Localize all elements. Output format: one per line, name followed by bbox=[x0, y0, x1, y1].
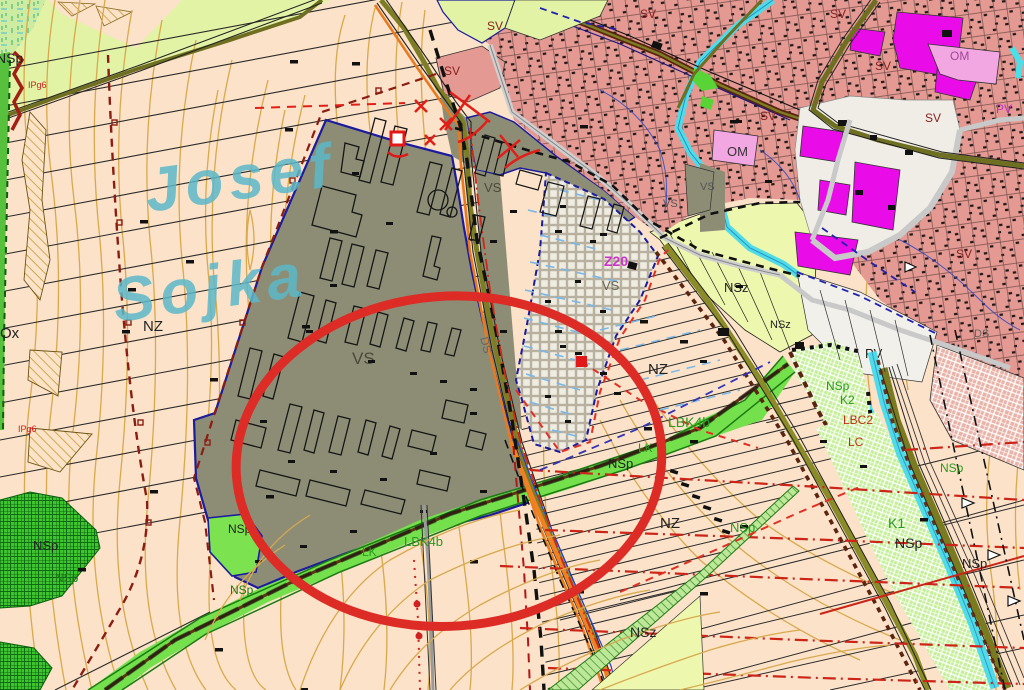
svg-text:LBK4b: LBK4b bbox=[668, 414, 710, 430]
svg-text:NSp: NSp bbox=[895, 535, 922, 551]
svg-text:VS: VS bbox=[602, 278, 620, 293]
svg-text:LBC2: LBC2 bbox=[843, 413, 873, 427]
svg-text:NSz: NSz bbox=[630, 624, 656, 640]
svg-text:NSp: NSp bbox=[55, 571, 79, 585]
svg-text:NSp: NSp bbox=[230, 583, 254, 597]
svg-text:SV: SV bbox=[830, 7, 846, 21]
svg-text:NSp: NSp bbox=[940, 461, 964, 475]
svg-text:VS: VS bbox=[352, 349, 375, 368]
svg-text:IPg6: IPg6 bbox=[18, 424, 37, 434]
svg-text:SV: SV bbox=[487, 19, 503, 33]
svg-text:OM: OM bbox=[727, 144, 748, 159]
svg-text:OM: OM bbox=[950, 49, 969, 63]
svg-text:PV: PV bbox=[996, 102, 1012, 116]
svg-text:NSp: NSp bbox=[962, 556, 987, 571]
svg-text:VS: VS bbox=[484, 180, 502, 195]
svg-text:K1: K1 bbox=[888, 515, 905, 531]
svg-text:VS: VS bbox=[663, 198, 678, 210]
svg-text:LK: LK bbox=[362, 545, 377, 559]
svg-text:NSp: NSp bbox=[608, 456, 633, 471]
svg-text:VS: VS bbox=[700, 181, 715, 193]
svg-text:IPg6: IPg6 bbox=[28, 80, 47, 90]
svg-text:LC: LC bbox=[848, 435, 864, 449]
svg-text:K2: K2 bbox=[840, 393, 855, 407]
svg-text:SV: SV bbox=[956, 247, 972, 261]
svg-text:NSp: NSp bbox=[730, 520, 755, 535]
svg-text:LBK4b: LBK4b bbox=[404, 534, 443, 549]
svg-text:NZ: NZ bbox=[648, 361, 668, 378]
svg-text:NSp: NSp bbox=[0, 50, 23, 66]
svg-text:SV: SV bbox=[640, 7, 656, 21]
svg-text:NSp: NSp bbox=[826, 379, 850, 393]
svg-text:NSp: NSp bbox=[33, 538, 58, 553]
svg-text:Ox: Ox bbox=[0, 325, 20, 342]
svg-text:LK: LK bbox=[638, 441, 653, 455]
svg-text:SV: SV bbox=[760, 109, 776, 123]
svg-text:DS: DS bbox=[974, 328, 989, 340]
svg-text:SV: SV bbox=[444, 64, 460, 78]
svg-text:NSz: NSz bbox=[770, 319, 791, 331]
svg-text:NZ: NZ bbox=[143, 318, 163, 335]
svg-text:Z20: Z20 bbox=[604, 253, 628, 269]
svg-text:SV: SV bbox=[925, 111, 941, 125]
svg-text:SV: SV bbox=[875, 59, 891, 73]
svg-text:NZ: NZ bbox=[660, 515, 680, 532]
